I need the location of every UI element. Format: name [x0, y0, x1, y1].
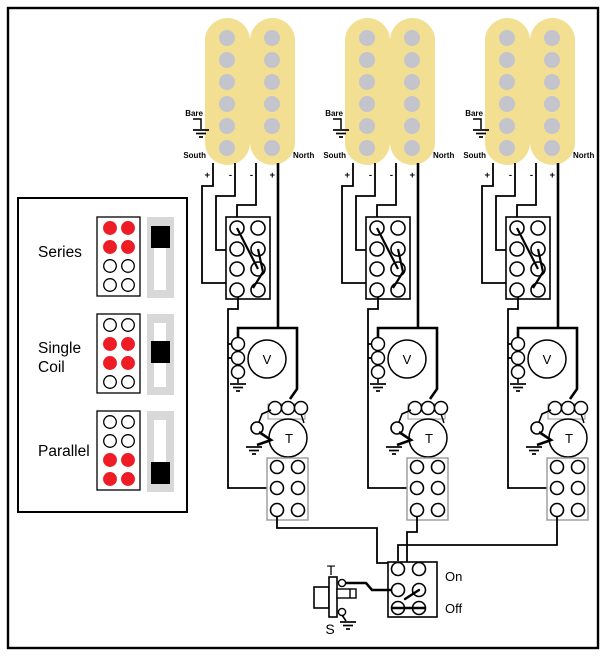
pole-piece	[499, 30, 515, 46]
switch-lug	[230, 283, 244, 297]
channel-2: BareSouthNorth+--+VT	[323, 18, 454, 520]
pole-piece	[264, 52, 280, 68]
pole-piece	[219, 74, 235, 90]
jack-tip-label: T	[327, 562, 336, 578]
block-lug	[432, 504, 445, 517]
wiring-diagram-page: SeriesSingleCoilParallelBareSouthNorth+-…	[0, 0, 607, 657]
north-coil-label: North	[573, 151, 594, 160]
slide-switch-handle	[151, 226, 170, 248]
block-lug	[551, 504, 564, 517]
pole-piece	[544, 52, 560, 68]
legend-dot-inactive	[104, 376, 117, 389]
switch-output-wire	[228, 297, 270, 488]
pole-piece	[499, 96, 515, 112]
kill-switch-lug	[392, 584, 405, 597]
volume-lug-ground	[232, 366, 245, 379]
terminal-label: -	[530, 170, 533, 181]
switch-lug	[510, 283, 524, 297]
kill-switch: OnOff	[388, 562, 462, 617]
legend-dot-active	[122, 222, 135, 235]
pole-piece	[359, 74, 375, 90]
slide-switch-handle	[151, 341, 170, 363]
wiring-diagram-canvas: SeriesSingleCoilParallelBareSouthNorth+-…	[0, 0, 607, 657]
terminal-label: -	[229, 170, 232, 181]
switch-output-wire	[508, 297, 550, 488]
terminal-label: +	[269, 170, 275, 181]
pole-piece	[219, 140, 235, 156]
block-lug	[271, 461, 284, 474]
block-lug	[271, 482, 284, 495]
legend-dot-inactive	[104, 416, 117, 429]
block3-output-wire	[398, 516, 557, 561]
jack-body	[314, 587, 329, 608]
switch-lug	[230, 242, 244, 256]
legend-dot-active	[122, 241, 135, 254]
tone-lug-middle	[422, 402, 435, 415]
switch-lug	[391, 283, 405, 297]
pole-piece	[264, 30, 280, 46]
off-label: Off	[445, 601, 462, 616]
jack-sleeve-label: S	[325, 621, 334, 637]
south-coil-label: South	[183, 151, 206, 160]
switch-lug	[370, 262, 384, 276]
tone-pot-label: T	[565, 431, 573, 446]
south-coil-label: South	[463, 151, 486, 160]
pole-piece	[359, 30, 375, 46]
jack-tip-lug	[338, 579, 345, 586]
pole-piece	[544, 96, 560, 112]
pole-piece	[359, 52, 375, 68]
legend-item-label: Series	[38, 244, 82, 261]
block-lug	[292, 504, 305, 517]
south-coil-label: South	[323, 151, 346, 160]
pole-piece	[359, 96, 375, 112]
block-lug	[551, 482, 564, 495]
bare-ground-wire	[193, 119, 201, 129]
switch-lug	[531, 283, 545, 297]
legend-dot-inactive	[122, 260, 135, 273]
terminal-label: +	[484, 170, 490, 181]
north-coil-label: North	[293, 151, 314, 160]
legend-dot-inactive	[104, 435, 117, 448]
terminal-label: +	[204, 170, 210, 181]
pole-piece	[544, 74, 560, 90]
terminal-label: +	[344, 170, 350, 181]
north-minus-wire	[517, 163, 536, 221]
pole-piece	[404, 30, 420, 46]
legend-item-series: Series	[38, 217, 174, 298]
legend-dot-active	[104, 222, 117, 235]
block-lug	[432, 461, 445, 474]
pole-piece	[264, 140, 280, 156]
pole-piece	[499, 52, 515, 68]
pole-piece	[404, 74, 420, 90]
volume-lug-wiper	[232, 352, 245, 365]
pole-piece	[499, 74, 515, 90]
bare-ground-wire	[473, 119, 481, 129]
legend-dot-active	[104, 473, 117, 486]
legend-dot-active	[104, 357, 117, 370]
switch-lug	[370, 283, 384, 297]
block2-output-wire	[407, 516, 417, 562]
tone-lug-right	[575, 402, 588, 415]
kill-switch-lug	[413, 563, 426, 576]
legend-dot-inactive	[122, 416, 135, 429]
wiring-diagram: SeriesSingleCoilParallelBareSouthNorth+-…	[0, 0, 607, 657]
tone-lug-left	[549, 402, 562, 415]
volume-lug-input	[372, 338, 385, 351]
jack-prong	[337, 589, 356, 598]
legend-dot-inactive	[104, 260, 117, 273]
legend-item-label: Single	[38, 340, 81, 357]
pole-piece	[219, 118, 235, 134]
block-lug	[411, 461, 424, 474]
legend-dot-active	[104, 338, 117, 351]
kill-switch-lug	[392, 563, 405, 576]
pole-piece	[544, 140, 560, 156]
pole-piece	[499, 118, 515, 134]
legend-dot-active	[122, 454, 135, 467]
jack-sleeve-lug	[338, 608, 345, 615]
legend-dot-active	[104, 454, 117, 467]
legend-dot-inactive	[104, 319, 117, 332]
block-lug	[572, 504, 585, 517]
switch-lug	[531, 221, 545, 235]
bare-wire-label: Bare	[465, 109, 483, 118]
switch-lug	[510, 242, 524, 256]
legend-item-label: Coil	[38, 359, 65, 376]
terminal-label: +	[409, 170, 415, 181]
pole-piece	[404, 140, 420, 156]
legend-item-single-coil: SingleCoil	[38, 314, 174, 395]
switch-lug	[251, 221, 265, 235]
volume-pot-label: V	[263, 352, 272, 367]
legend-item-label: Parallel	[38, 443, 90, 460]
volume-lug-input	[512, 338, 525, 351]
switch-lug	[251, 283, 265, 297]
legend-dot-inactive	[122, 319, 135, 332]
north-coil-label: North	[433, 151, 454, 160]
pole-piece	[404, 52, 420, 68]
switch-lug	[391, 221, 405, 235]
tone-pot-label: T	[425, 431, 433, 446]
switch-lug	[230, 262, 244, 276]
legend-dot-inactive	[122, 435, 135, 448]
terminal-label: -	[390, 170, 393, 181]
tone-lug-middle	[562, 402, 575, 415]
pole-piece	[219, 52, 235, 68]
volume-lug-ground	[372, 366, 385, 379]
tone-lug-left	[409, 402, 422, 415]
terminal-label: -	[250, 170, 253, 181]
pole-piece	[219, 96, 235, 112]
pole-piece	[264, 118, 280, 134]
output-jack: TS	[314, 562, 391, 637]
legend-item-parallel: Parallel	[38, 411, 174, 492]
block-lug	[432, 482, 445, 495]
north-minus-wire	[237, 163, 256, 221]
bare-ground-wire	[333, 119, 341, 129]
pole-piece	[219, 30, 235, 46]
switch-lug	[370, 242, 384, 256]
tone-lug-right	[435, 402, 448, 415]
block-lug	[292, 461, 305, 474]
pole-piece	[404, 96, 420, 112]
block-lug	[292, 482, 305, 495]
volume-lug-wiper	[372, 352, 385, 365]
tone-pot-label: T	[285, 431, 293, 446]
channel-3: BareSouthNorth+--+VT	[463, 18, 594, 520]
legend-dot-inactive	[122, 279, 135, 292]
volume-lug-wiper	[512, 352, 525, 365]
channel-1: BareSouthNorth+--+VT	[183, 18, 314, 520]
block-lug	[572, 482, 585, 495]
bare-wire-label: Bare	[185, 109, 203, 118]
terminal-label: -	[369, 170, 372, 181]
pole-piece	[404, 118, 420, 134]
pole-piece	[264, 96, 280, 112]
legend-dot-active	[122, 357, 135, 370]
volume-lug-ground	[512, 366, 525, 379]
jack-ground-wire	[342, 615, 346, 621]
pole-piece	[359, 140, 375, 156]
pole-piece	[544, 30, 560, 46]
pole-piece	[359, 118, 375, 134]
block-lug	[551, 461, 564, 474]
block-lug	[572, 461, 585, 474]
volume-pot-label: V	[543, 352, 552, 367]
switch-output-wire	[368, 297, 410, 488]
terminal-label: +	[549, 170, 555, 181]
bare-wire-label: Bare	[325, 109, 343, 118]
block-lug	[411, 504, 424, 517]
volume-pot-label: V	[403, 352, 412, 367]
pole-piece	[544, 118, 560, 134]
tone-lug-middle	[282, 402, 295, 415]
block1-output-wire	[277, 516, 391, 563]
jack-plate	[329, 577, 337, 617]
north-minus-wire	[377, 163, 396, 221]
slide-switch-handle	[151, 462, 170, 484]
pole-piece	[264, 74, 280, 90]
block-lug	[411, 482, 424, 495]
pole-piece	[499, 140, 515, 156]
tone-lug-right	[295, 402, 308, 415]
legend-dot-active	[104, 241, 117, 254]
tone-lug-left	[269, 402, 282, 415]
terminal-label: -	[509, 170, 512, 181]
legend-dot-active	[122, 473, 135, 486]
switch-lug	[510, 262, 524, 276]
legend-dot-inactive	[122, 376, 135, 389]
block-lug	[271, 504, 284, 517]
legend-dot-active	[122, 338, 135, 351]
on-label: On	[445, 569, 462, 584]
volume-lug-input	[232, 338, 245, 351]
legend-dot-inactive	[104, 279, 117, 292]
